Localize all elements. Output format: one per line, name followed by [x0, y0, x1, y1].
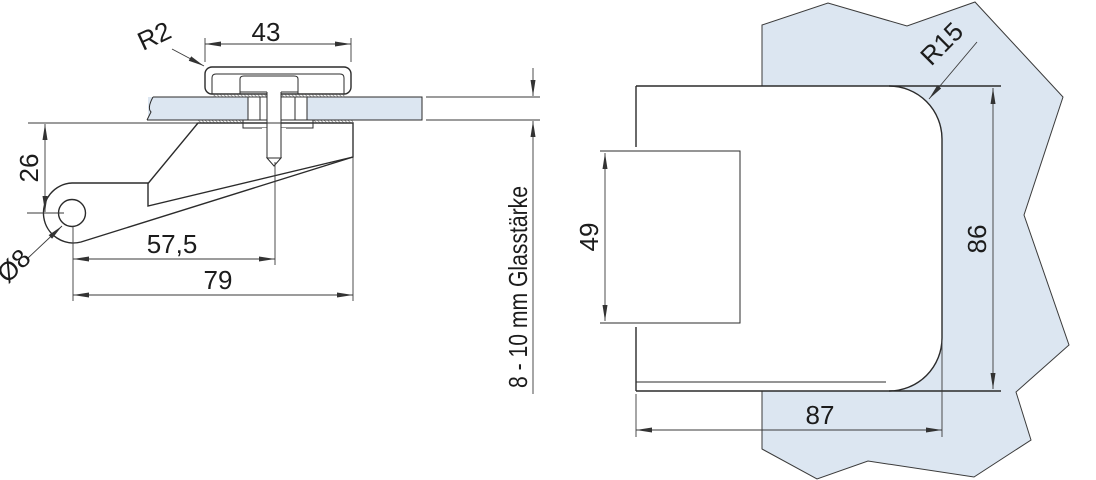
dimension-label-26: 26: [14, 154, 44, 183]
technical-drawing-sheet: 43 R2 26 Ø8 57,5 79: [0, 0, 1096, 480]
dimension-79: 79: [73, 123, 353, 301]
clamp-body-section: [148, 123, 353, 206]
upper-gasket-left: [214, 94, 266, 97]
dimension-label-87: 87: [806, 400, 835, 430]
dimension-label-49: 49: [574, 223, 604, 252]
clamp-front-fill: [636, 86, 942, 391]
radius-r2-callout: R2: [133, 15, 204, 66]
dimension-label-57-5: 57,5: [147, 229, 198, 259]
dimension-label-86: 86: [962, 225, 992, 254]
glass-thickness-note: 8 - 10 mm Glasstärke: [503, 186, 533, 388]
dimension-label-r2: R2: [133, 15, 176, 56]
dimension-43: 43: [205, 17, 351, 62]
glass-clamp-drawing: 43 R2 26 Ø8 57,5 79: [0, 0, 1096, 480]
screw-stem-fill: [267, 92, 281, 158]
screw-tip: [267, 158, 281, 166]
dimension-label-43: 43: [252, 17, 281, 47]
dimension-49: 49: [574, 153, 605, 321]
dimension-26: 26: [14, 124, 64, 213]
cover-cap: [205, 67, 351, 94]
dimension-glass-thickness: 8 - 10 mm Glasstärke: [426, 68, 540, 394]
eyelet-arm-outline: [43, 157, 353, 243]
cap-cavity: [212, 74, 344, 94]
dimension-label-dia8: Ø8: [0, 243, 37, 289]
screw-head: [240, 76, 298, 94]
side-section-view: 43 R2 26 Ø8 57,5 79: [0, 15, 540, 394]
front-view: 49 86 87 R15: [574, 2, 1069, 479]
dimension-label-79: 79: [204, 265, 233, 295]
upper-gasket-right: [282, 94, 344, 97]
